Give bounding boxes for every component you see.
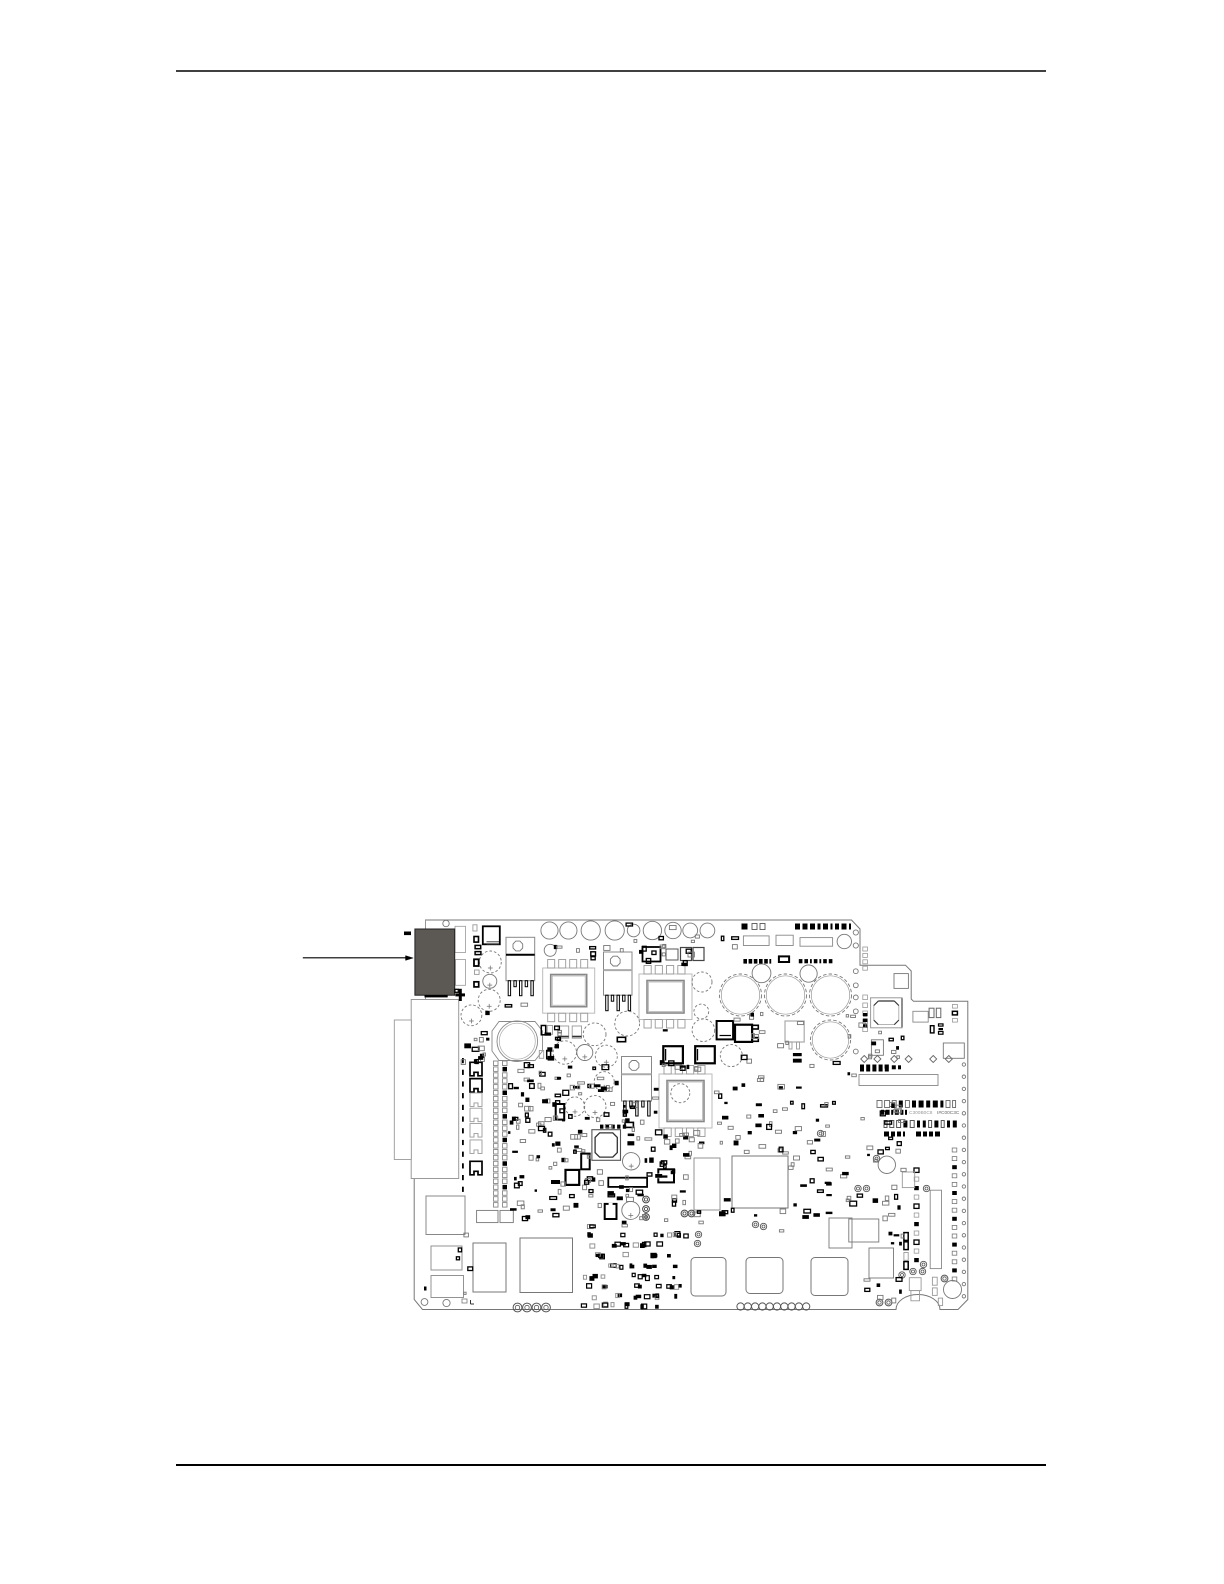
- svg-text:C300B0C8: C300B0C8: [909, 1110, 933, 1116]
- svg-text:I#C00C3C: I#C00C3C: [937, 1110, 960, 1116]
